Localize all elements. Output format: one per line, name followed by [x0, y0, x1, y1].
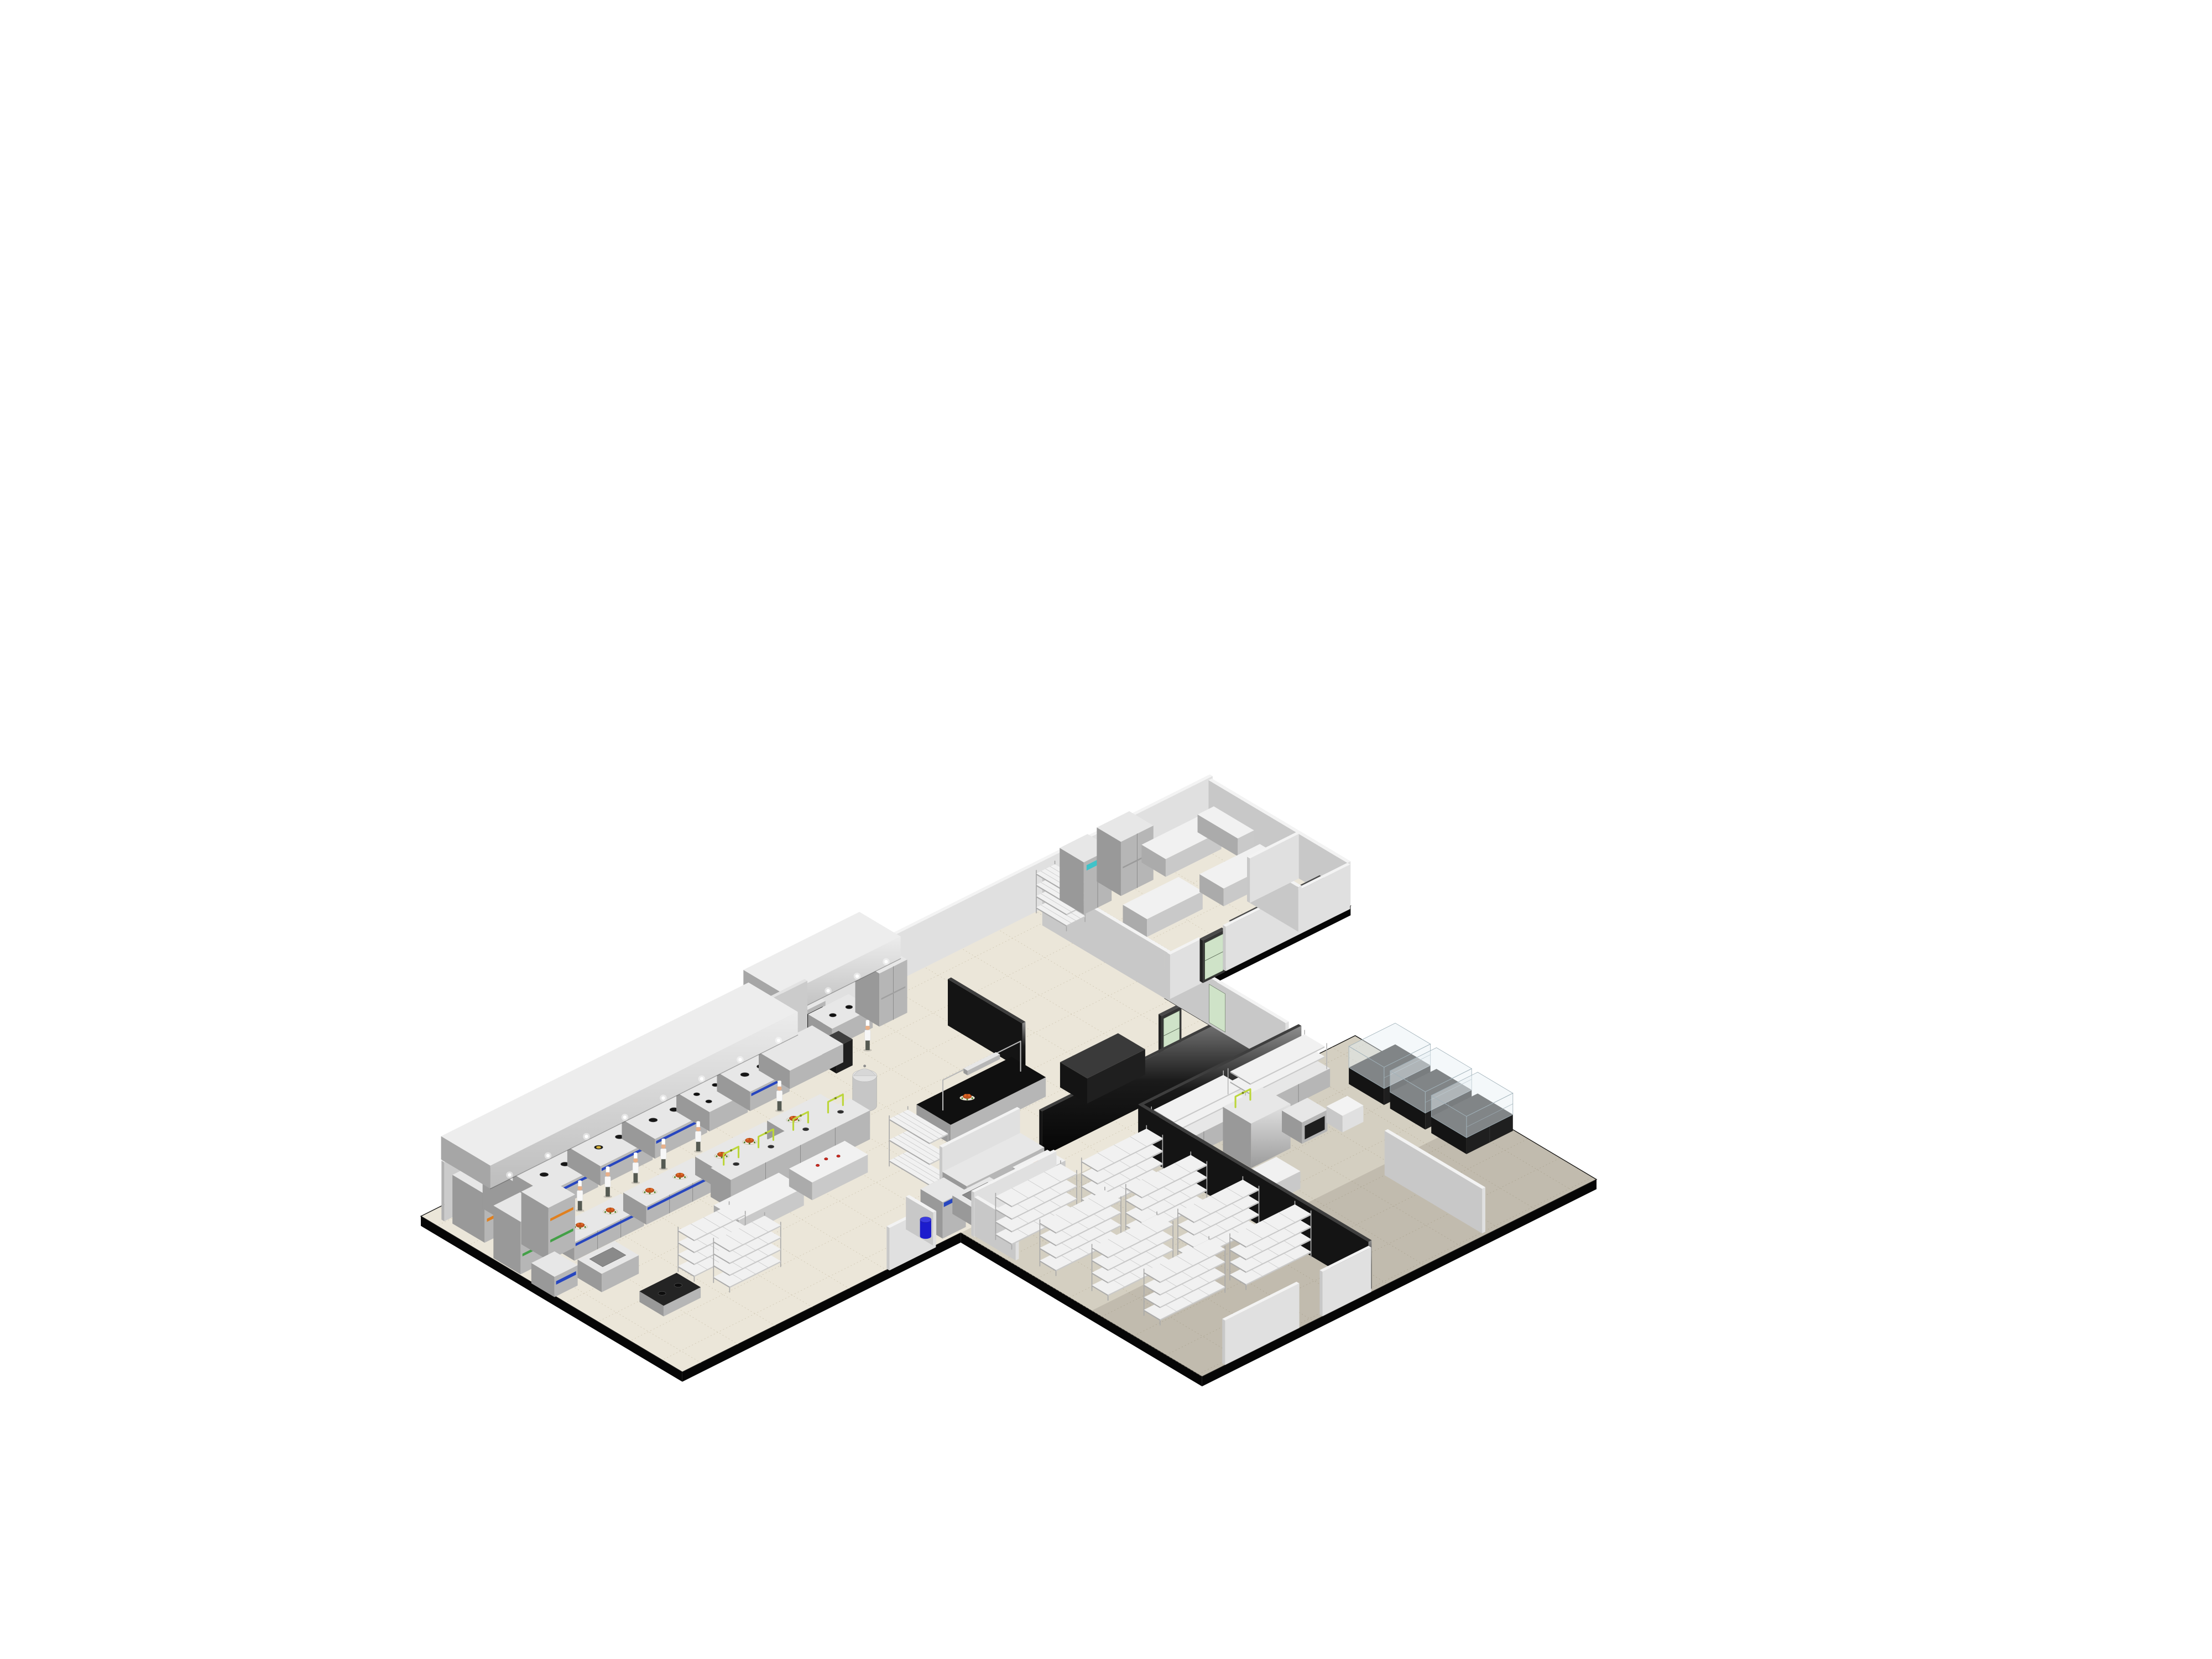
kitchen-3d-render — [0, 0, 2212, 1659]
kitchen-3d-render-svg — [0, 0, 2212, 1659]
